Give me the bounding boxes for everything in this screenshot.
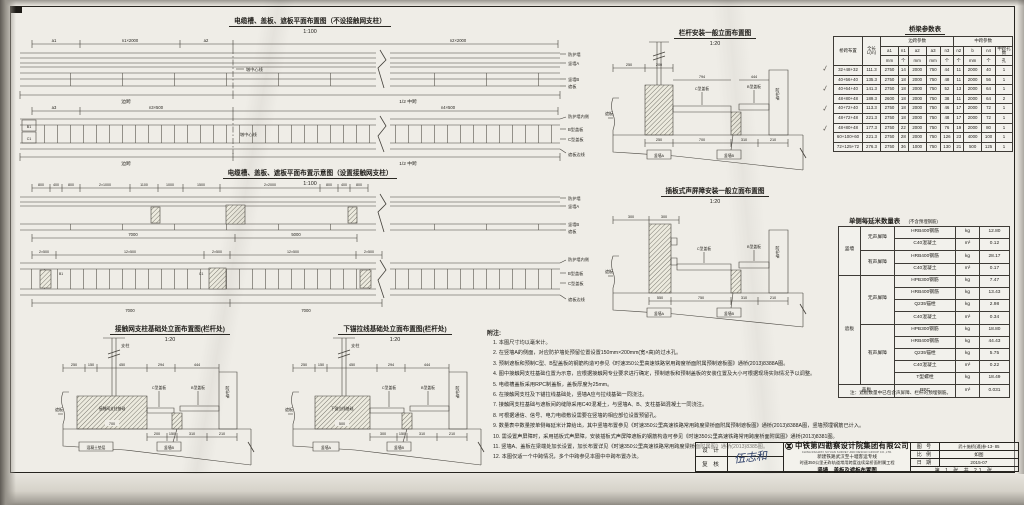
bridge-table-title: 桥梁参数表 bbox=[905, 24, 945, 35]
table-cell: 1 bbox=[996, 104, 1013, 114]
table-cell: 72 bbox=[982, 104, 996, 114]
table-cell: 44 bbox=[940, 66, 954, 76]
table-cell: 2 bbox=[996, 94, 1013, 104]
table-cell: 17 bbox=[954, 113, 964, 123]
leader-coverB: B型盖板 bbox=[568, 126, 584, 133]
figure-info-block: 图 号 武十施桥(通)参-13- 85 比 例 如图 日 期 2015-07 第… bbox=[911, 443, 1018, 471]
fig-no-value: 武十施桥(通)参-13- 85 bbox=[940, 443, 1018, 450]
table-cell: 72 bbox=[982, 113, 996, 123]
unit: kg bbox=[956, 251, 980, 263]
table-cell: 56 bbox=[982, 75, 996, 85]
unit-label-B1: B1 bbox=[59, 272, 63, 276]
value: 0.031 bbox=[979, 385, 1009, 397]
table-cell: 4000 bbox=[964, 133, 982, 143]
col: n2 bbox=[954, 46, 964, 56]
value: 18.49 bbox=[979, 373, 1009, 385]
table-cell: 750 bbox=[926, 123, 940, 133]
table-cell: 750 bbox=[926, 85, 940, 95]
table-cell: 100 bbox=[982, 133, 996, 143]
item: HPB300钢筋 bbox=[894, 275, 955, 287]
table-cell: 2000 bbox=[908, 104, 926, 114]
dim: 210 bbox=[449, 432, 455, 436]
table-cell: 19 bbox=[954, 123, 964, 133]
table-cell: 11 bbox=[954, 66, 964, 76]
dim: 300 bbox=[380, 432, 386, 436]
table-cell: 2000 bbox=[908, 133, 926, 143]
dim-n2x2000: n2×2000 bbox=[450, 38, 467, 43]
unit: m³ bbox=[956, 312, 980, 324]
scan-shadow-left bbox=[0, 0, 16, 505]
fig-no-label: 图 号 bbox=[911, 443, 940, 450]
drawing-sheet: 电缆槽、盖板、遮板平面布置图（不设接触网支柱） 1:100 bbox=[0, 0, 1024, 505]
table-cell: 750 bbox=[926, 66, 940, 76]
leader-parapet: 防护墙 bbox=[568, 195, 581, 202]
table-cell: 1 bbox=[996, 133, 1013, 143]
value: 2.98 bbox=[979, 300, 1009, 312]
leader-slab-edge: 遮板边线 bbox=[568, 151, 586, 158]
dim-n4x500: n4×500 bbox=[441, 105, 456, 110]
dim: 2×1000 bbox=[99, 183, 111, 187]
unit: kg bbox=[956, 287, 980, 299]
table-cell: 750 bbox=[926, 142, 940, 152]
unit: m³ bbox=[956, 263, 980, 275]
col: n4 bbox=[982, 46, 996, 56]
slab-label: 遮板 bbox=[55, 406, 63, 412]
leader-wallB: 竖墙B bbox=[568, 221, 579, 228]
unit: mm bbox=[926, 56, 940, 66]
table-cell: 1 bbox=[996, 123, 1013, 133]
table-cell: 2000 bbox=[964, 104, 982, 114]
leader-coverC: C型盖板 bbox=[568, 136, 584, 143]
dim-a3: a3 bbox=[52, 105, 57, 110]
leader-coverC: C型盖板 bbox=[568, 280, 584, 287]
scan-shadow-top bbox=[0, 0, 1024, 6]
table-cell: 1 bbox=[996, 142, 1013, 152]
post-label: 支柱 bbox=[351, 342, 360, 349]
table-cell: 2000 bbox=[908, 75, 926, 85]
base-label: 混凝土垫层 bbox=[87, 445, 106, 450]
coverC-label: C型盖板 bbox=[382, 385, 396, 390]
group-mid-span: 中跨参数 bbox=[954, 37, 1013, 47]
wallB-label: 竖墙B bbox=[394, 445, 405, 450]
leader-coverB: B型盖板 bbox=[568, 270, 584, 277]
col: a3 bbox=[926, 46, 940, 56]
unit: 孔 bbox=[996, 56, 1013, 66]
table-cell: 750 bbox=[926, 94, 940, 104]
dim: 294 bbox=[388, 363, 394, 367]
table-cell: 750 bbox=[926, 133, 940, 143]
table-cell: 2000 bbox=[964, 66, 982, 76]
unit: 个 bbox=[954, 56, 964, 66]
dim: 444 bbox=[424, 363, 430, 367]
table-cell: 52 bbox=[940, 85, 954, 95]
paper-crease bbox=[120, 0, 350, 505]
table-cell: 130 bbox=[940, 142, 954, 152]
table-cell: 2000 bbox=[964, 94, 982, 104]
unit: kg bbox=[956, 275, 980, 287]
item: C40混凝土 bbox=[894, 239, 955, 251]
unit: kg bbox=[956, 300, 980, 312]
value: 44.43 bbox=[979, 336, 1009, 348]
value: 5.75 bbox=[979, 348, 1009, 360]
value: 13.43 bbox=[979, 287, 1009, 299]
scale-value: 如图 bbox=[940, 451, 1018, 458]
col: b bbox=[964, 46, 982, 56]
leader-wallA: 竖墙A bbox=[568, 60, 579, 67]
table-cell: 11 bbox=[954, 75, 964, 85]
foundation-dim: 700 bbox=[109, 422, 115, 426]
table-cell: 2000 bbox=[908, 66, 926, 76]
end-unit-B1: B1 bbox=[27, 125, 31, 129]
leader-parapet: 防护墙 bbox=[568, 51, 581, 58]
table-cell: 750 bbox=[926, 75, 940, 85]
col: a2 bbox=[908, 46, 926, 56]
item: Q235锚栓 bbox=[894, 300, 955, 312]
item: HRB400钢筋 bbox=[894, 251, 955, 263]
table-cell: 64 bbox=[982, 94, 996, 104]
date-value: 2015-07 bbox=[940, 459, 1018, 466]
coverB-label: B型盖板 bbox=[421, 385, 435, 390]
item: HRB400钢筋 bbox=[894, 227, 955, 239]
col: 中跨孔数 bbox=[996, 46, 1013, 56]
dim: 310 bbox=[419, 432, 425, 436]
table-cell: 1 bbox=[996, 85, 1013, 95]
unit: mm bbox=[964, 56, 982, 66]
dim: 800 bbox=[38, 183, 44, 187]
table-cell: 17 bbox=[954, 104, 964, 114]
col: n3 bbox=[940, 46, 954, 56]
dim: 150 bbox=[88, 363, 94, 367]
date-label: 日 期 bbox=[911, 459, 940, 466]
unit: mm bbox=[908, 56, 926, 66]
table-cell: 1 bbox=[996, 113, 1013, 123]
dim: 400 bbox=[53, 183, 59, 187]
value: 0.17 bbox=[979, 263, 1009, 275]
table-cell: 1000 bbox=[908, 142, 926, 152]
leader-parapet-inner: 防护墙内侧 bbox=[568, 113, 589, 120]
leader-parapet-inner: 防护墙内侧 bbox=[568, 256, 589, 263]
leader-slab: 遮板 bbox=[568, 83, 577, 90]
unit: m³ bbox=[956, 239, 980, 251]
unit: 个 bbox=[982, 56, 996, 66]
item: C40混凝土 bbox=[894, 263, 955, 275]
value: 12.80 bbox=[979, 227, 1009, 239]
sheet-number: 第 1 张 共 21 张 bbox=[911, 467, 1018, 474]
table-cell: 1 bbox=[996, 66, 1013, 76]
table-cell: 48 bbox=[940, 75, 954, 85]
table-cell: 64 bbox=[982, 85, 996, 95]
table-cell: 2000 bbox=[908, 85, 926, 95]
value: 28.17 bbox=[979, 251, 1009, 263]
table-cell: 750 bbox=[926, 113, 940, 123]
dim-a1: a1 bbox=[52, 38, 57, 43]
table-cell: 2000 bbox=[964, 85, 982, 95]
table-cell: 13 bbox=[954, 85, 964, 95]
scan-shadow-bottom bbox=[0, 474, 1024, 505]
value: 0.12 bbox=[979, 239, 1009, 251]
value: 7.47 bbox=[979, 275, 1009, 287]
table-cell: 46 bbox=[940, 104, 954, 114]
dim: 2×500 bbox=[364, 250, 374, 254]
item: C40混凝土 bbox=[894, 312, 955, 324]
table-cell: 2000 bbox=[908, 123, 926, 133]
table-cell: 750 bbox=[926, 104, 940, 114]
qty-table-subtitle: (不含预埋钢筋) bbox=[909, 219, 938, 224]
table-cell: 11 bbox=[954, 94, 964, 104]
unit: 个 bbox=[940, 56, 954, 66]
dim: 800 bbox=[68, 183, 74, 187]
parapet-label: 防护墙 bbox=[456, 385, 461, 399]
table-cell: 2000 bbox=[908, 94, 926, 104]
table-cell: 2000 bbox=[908, 113, 926, 123]
table-cell: 500 bbox=[964, 142, 982, 152]
table-cell: 126 bbox=[940, 133, 954, 143]
table-cell: 1 bbox=[996, 75, 1013, 85]
table-cell: 38 bbox=[940, 94, 954, 104]
table-cell: 76 bbox=[940, 123, 954, 133]
end-unit-C1: C1 bbox=[27, 137, 32, 141]
table-cell: 2000 bbox=[964, 113, 982, 123]
table-cell: 80 bbox=[982, 123, 996, 133]
dim: 150 bbox=[399, 432, 405, 436]
table-cell: 21 bbox=[954, 142, 964, 152]
leader-wallA: 竖墙A bbox=[568, 203, 579, 210]
table-cell: 125 bbox=[982, 142, 996, 152]
table-cell: 2000 bbox=[964, 75, 982, 85]
value: 0.34 bbox=[979, 312, 1009, 324]
dim: 800 bbox=[356, 183, 362, 187]
table-cell: 2000 bbox=[964, 123, 982, 133]
unit: kg bbox=[956, 227, 980, 239]
table-cell: 48 bbox=[940, 113, 954, 123]
item: HRB400钢筋 bbox=[894, 287, 955, 299]
dim: 2×500 bbox=[39, 250, 49, 254]
table-cell: 23 bbox=[954, 133, 964, 143]
paper-crease bbox=[600, 0, 900, 505]
leader-slab: 遮板 bbox=[568, 228, 577, 235]
leader-wallB: 竖墙B bbox=[568, 76, 579, 83]
scan-shadow-right bbox=[1017, 0, 1024, 505]
table-cell: 40 bbox=[982, 66, 996, 76]
dim: 250 bbox=[71, 363, 77, 367]
value: 0.22 bbox=[979, 361, 1009, 373]
value: 18.80 bbox=[979, 324, 1009, 336]
leader-slab-edge: 遮板边线 bbox=[568, 296, 586, 303]
scale-label: 比 例 bbox=[911, 451, 940, 458]
